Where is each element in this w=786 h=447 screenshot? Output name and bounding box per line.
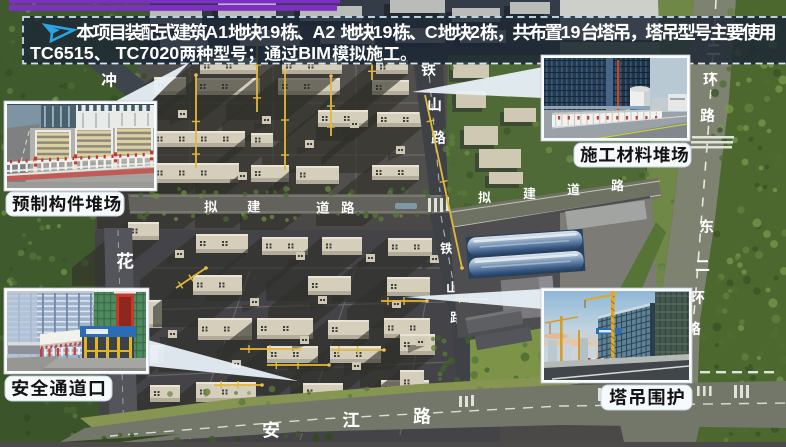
svg-text:A1: A1 bbox=[205, 22, 228, 42]
svg-text:BIM: BIM bbox=[298, 43, 331, 63]
svg-text:C: C bbox=[425, 22, 438, 42]
svg-text:A2: A2 bbox=[313, 22, 341, 42]
svg-text:19: 19 bbox=[373, 22, 393, 42]
svg-text:TC6515: TC6515 bbox=[30, 43, 94, 63]
svg-text:2: 2 bbox=[470, 22, 480, 42]
svg-text:19: 19 bbox=[260, 22, 280, 42]
svg-text:19: 19 bbox=[561, 22, 581, 42]
svg-text:TC7020: TC7020 bbox=[111, 43, 180, 63]
